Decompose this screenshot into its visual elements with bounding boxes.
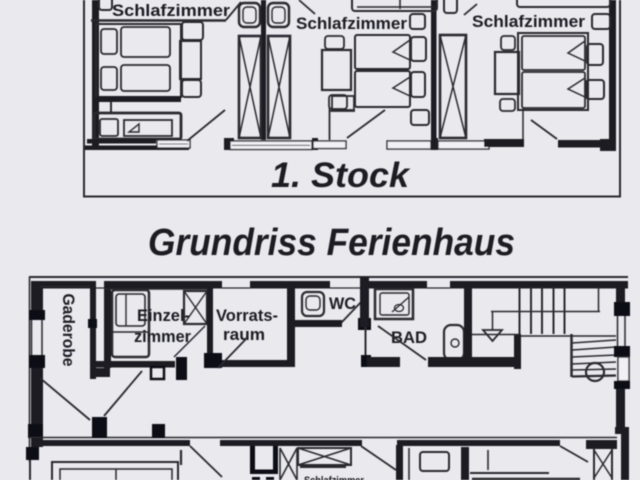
svg-text:Schlafzimmer: Schlafzimmer (304, 475, 365, 480)
svg-text:Grundriss Ferienhaus: Grundriss Ferienhaus (148, 222, 515, 264)
svg-text:Einzel-: Einzel- (137, 306, 190, 325)
svg-text:Gaderobe: Gaderobe (59, 294, 78, 367)
svg-text:1. Stock: 1. Stock (271, 156, 411, 195)
svg-text:BAD: BAD (391, 328, 427, 347)
svg-text:WC: WC (329, 294, 356, 313)
svg-text:Schlafzimmer: Schlafzimmer (472, 13, 586, 31)
svg-text:Schlafzimmer: Schlafzimmer (296, 15, 408, 33)
svg-text:Schlafzimmer: Schlafzimmer (112, 2, 231, 20)
svg-text:Vorrats-: Vorrats- (216, 306, 278, 325)
svg-text:zimmer: zimmer (134, 327, 191, 346)
